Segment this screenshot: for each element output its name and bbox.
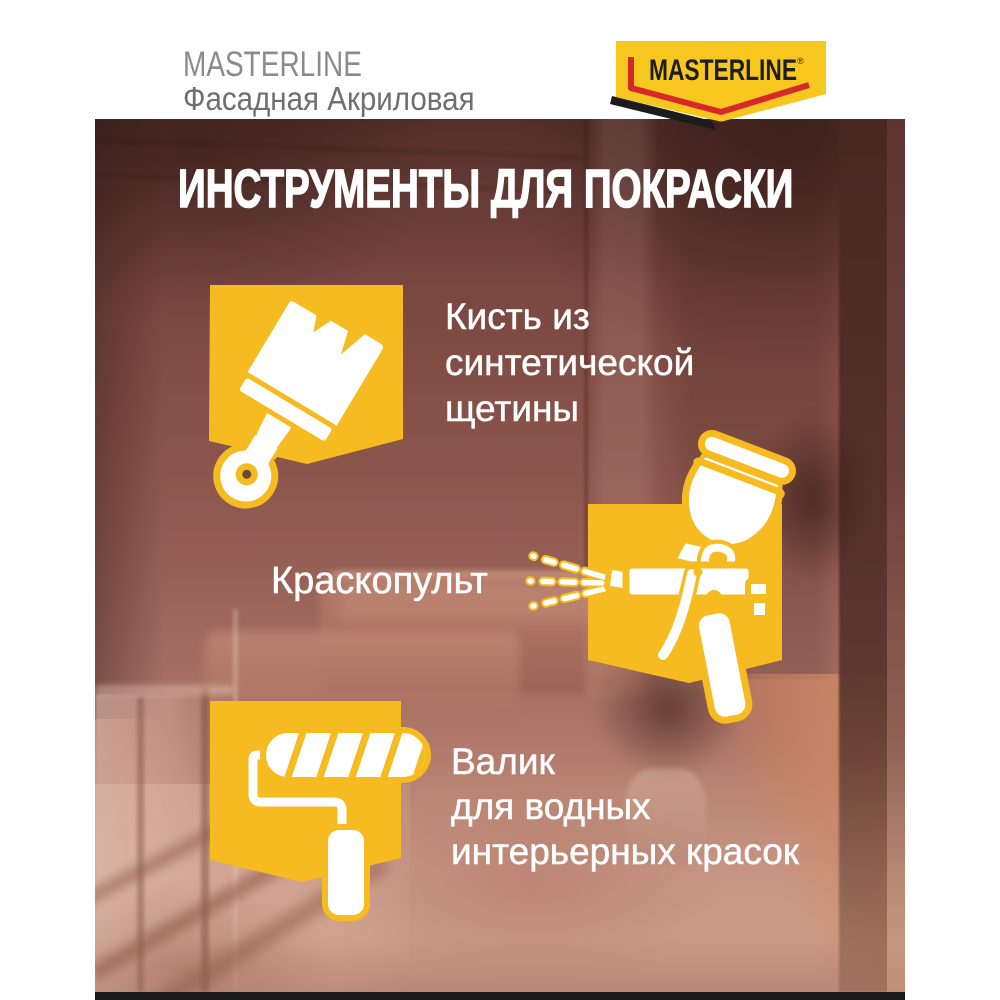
svg-text:®: ®	[797, 56, 804, 66]
svg-text:MASTERLINE: MASTERLINE	[649, 54, 797, 87]
